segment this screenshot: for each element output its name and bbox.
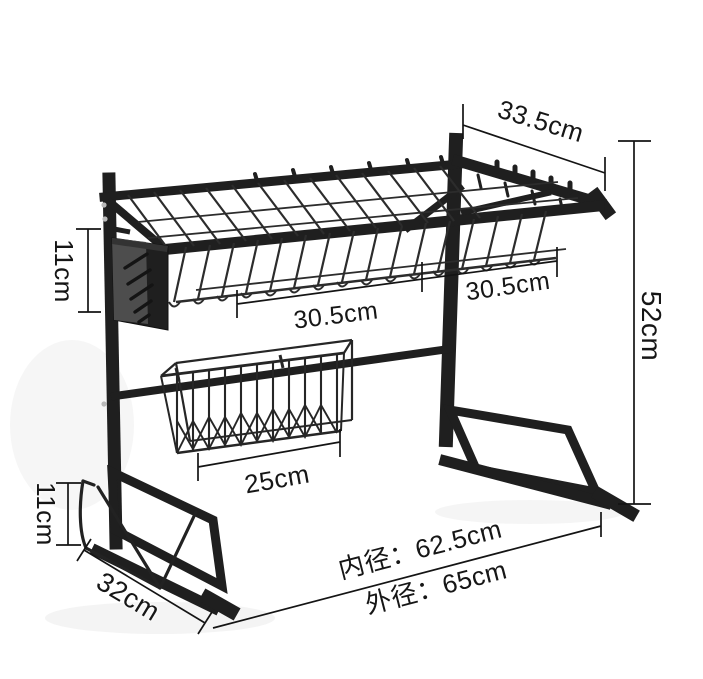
dim-label-knife-holder-height: 11cm: [51, 239, 77, 303]
dim-label-board-holder-height: 11cm: [33, 482, 59, 546]
dish-rack-dimension-diagram: 33.5cm 52cm 11cm 30.5cm 30.5cm 25cm 11cm…: [0, 0, 703, 679]
dim-label-overall-height: 52cm: [637, 291, 665, 361]
middle-wire-basket: [161, 340, 352, 453]
